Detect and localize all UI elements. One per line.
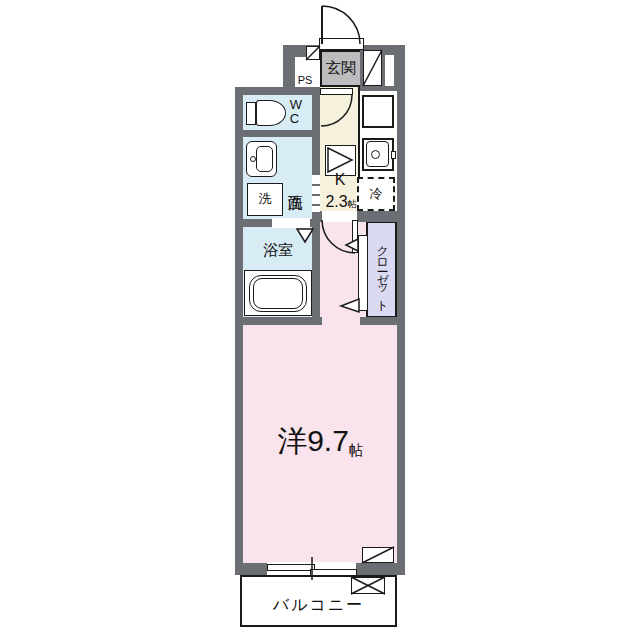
entrance-storage-box [363,50,382,86]
balcony-hatch-box [351,577,385,594]
bathroom-door-opening [272,218,310,228]
ps-hatch-box [306,46,320,60]
wall-closet-bottom [360,317,405,325]
ps-label: PS [293,73,317,87]
washing-machine-label: 洗 [247,183,283,216]
kitchen-size-unit: 帖 [348,200,357,211]
toilet-tank-icon [246,102,256,125]
washbasin-drain [250,156,256,162]
kitchen-sink-box [362,95,394,128]
kitchen-label: K [322,171,358,189]
kitchen-size-value: 2.3 [325,193,347,211]
ac-unit-box [362,547,394,563]
meter-niche [385,55,394,86]
floor-plan: 玄関 PS W C 洗面 洗 浴室 K 2.3帖 冷 クローゼット 洋9.7帖 … [0,0,640,640]
bathroom-label: 浴室 [254,240,302,260]
wall-outer-left [235,87,243,575]
kitchen-counter-divider [358,86,360,177]
washroom-door-tick [312,184,320,186]
balcony-label: バルコニー [240,594,397,616]
kitchen-door-leaf [320,88,353,95]
fridge-label: 冷 [357,177,395,211]
entrance-door-threshold [319,38,364,50]
washbasin-bowl [256,146,273,172]
wall-bathroom-bottom [235,317,322,325]
main-room-unit: 帖 [349,443,363,462]
main-room-label: 洋9.7帖 [243,418,397,462]
bathtub-inner [253,278,303,309]
wc-label: W C [286,94,306,130]
closet-label: クローゼット [373,226,391,316]
main-room-name: 洋9.7 [277,424,349,457]
washroom-label: 洗面 [286,151,304,215]
wall-outer-right [397,45,405,575]
closet-door-panel [358,235,368,311]
kitchen-stove-notch [391,151,396,159]
wall-wc-top [235,87,320,95]
kitchen-stove-burner [371,150,380,159]
genkan-label: 玄関 [320,50,362,87]
wall-wc-washroom [243,130,312,137]
sliding-window-panel-left [267,564,315,571]
